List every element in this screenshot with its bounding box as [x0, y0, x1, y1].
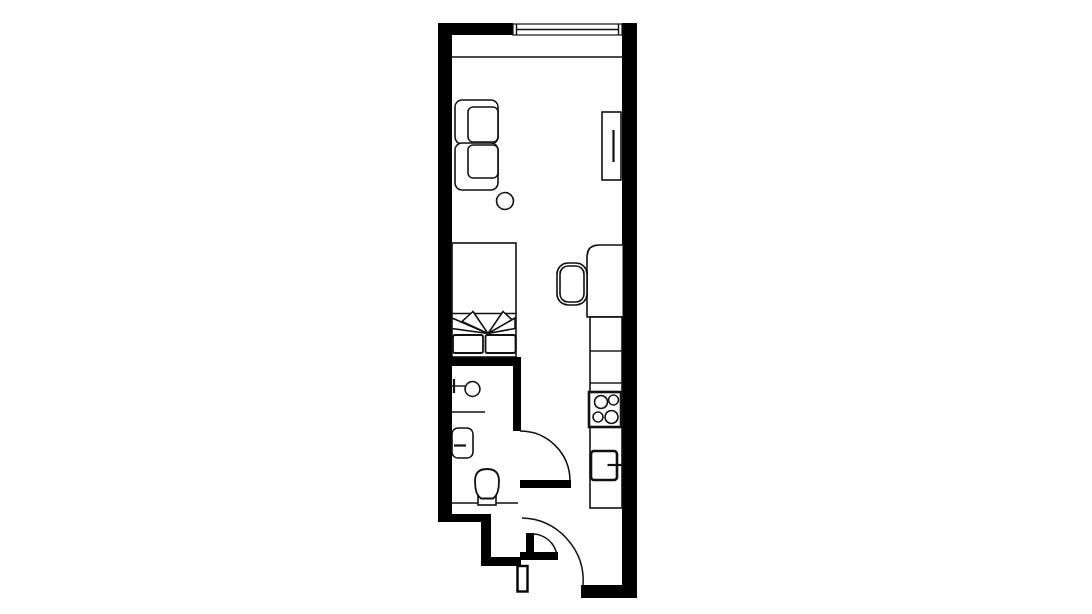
- entry-step-wall-horizontal: [481, 557, 521, 566]
- desk: [587, 245, 623, 317]
- bathroom-door-swing-arc: [520, 431, 570, 481]
- pillow-right: [486, 335, 516, 353]
- shower: [452, 379, 485, 412]
- bathroom-door-leaf: [520, 480, 571, 488]
- tv-sideboard: [602, 112, 621, 180]
- kitchen: [589, 317, 622, 508]
- right-wall: [622, 23, 637, 598]
- washbasin: [452, 428, 473, 458]
- burner-top-right: [609, 395, 619, 405]
- sofa-cushion-bottom: [468, 145, 498, 178]
- sofa-cushion-top: [468, 107, 498, 142]
- desk-chair-inner: [560, 266, 584, 302]
- pillow-left: [453, 335, 483, 353]
- toilet-bowl: [475, 469, 499, 499]
- burner-bottom-left: [593, 412, 603, 422]
- burner-top-left: [595, 396, 608, 409]
- washbasin-bowl: [452, 428, 473, 458]
- side-table: [497, 193, 514, 210]
- workspace: [557, 245, 623, 317]
- bathroom: [452, 379, 518, 505]
- stove: [589, 392, 621, 427]
- kitchen-sink: [591, 451, 622, 480]
- doors: [518, 431, 584, 592]
- bathroom-top-wall: [452, 357, 521, 366]
- top-wall: [438, 23, 513, 35]
- floor-plan: [0, 0, 1092, 614]
- tv-sideboard-body: [602, 112, 621, 180]
- left-wall: [438, 23, 452, 522]
- sofa: [455, 100, 498, 190]
- living-area: [455, 100, 621, 210]
- entry-inner-door-leaf: [520, 552, 558, 560]
- burner-bottom-right: [605, 411, 618, 424]
- floor-plan-canvas: [0, 0, 1092, 614]
- shower-head: [465, 382, 480, 397]
- entry-door-leaf: [518, 566, 528, 592]
- bathroom-right-wall: [513, 357, 521, 431]
- sleeping-area: [452, 243, 516, 357]
- bottom-wall: [581, 585, 637, 598]
- toilet: [452, 469, 518, 505]
- entry-wall-stub: [526, 533, 534, 556]
